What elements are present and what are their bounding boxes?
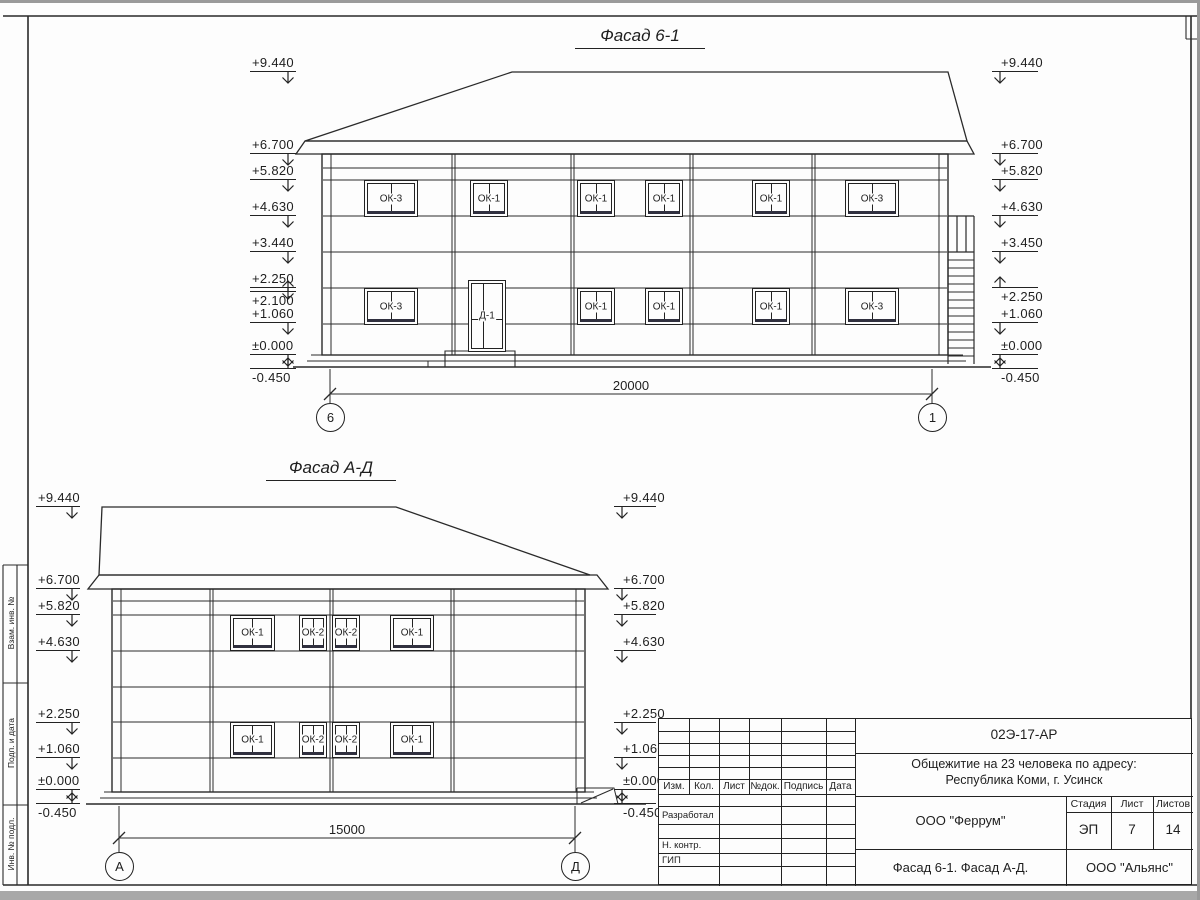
window-label: ОК-2 bbox=[334, 628, 359, 639]
elevation-mark-value: +6.700 bbox=[252, 137, 294, 152]
elevation-mark-value: +9.440 bbox=[38, 490, 80, 505]
window: ОК-3 bbox=[845, 288, 899, 325]
elevation-arrow-down-icon bbox=[65, 758, 79, 771]
window-label: ОК-2 bbox=[334, 735, 359, 746]
window-label: ОК-3 bbox=[860, 301, 885, 312]
col-kol: Кол. bbox=[689, 781, 719, 792]
window: ОК-1 bbox=[577, 180, 615, 217]
elevation-mark-value: +9.440 bbox=[623, 490, 665, 505]
elevation-arrow-down-icon bbox=[615, 723, 629, 736]
elevation-mark-value: -0.450 bbox=[252, 370, 291, 385]
axis-mark-a: А bbox=[105, 852, 134, 881]
facade2-dimension: 15000 bbox=[307, 822, 387, 837]
elevation-mark-value: +4.630 bbox=[1001, 199, 1043, 214]
elevation-mark-value: +4.630 bbox=[252, 199, 294, 214]
elevation-mark-value: +1.060 bbox=[1001, 306, 1043, 321]
elevation-arrow-down-icon bbox=[281, 180, 295, 193]
elevation-arrow-down-icon bbox=[993, 180, 1007, 193]
stage-value: ЭП bbox=[1066, 822, 1111, 837]
window: ОК-2 bbox=[332, 615, 360, 651]
axis-label: 6 bbox=[327, 410, 334, 425]
axis-mark-6: 6 bbox=[316, 403, 345, 432]
elevation-mark-value: ±0.000 bbox=[38, 773, 79, 788]
paper-edge-top bbox=[0, 0, 1200, 3]
window-label: ОК-1 bbox=[477, 193, 502, 204]
elevation-mark-value: +3.450 bbox=[1001, 235, 1043, 250]
elevation-mark-value: +6.700 bbox=[1001, 137, 1043, 152]
elevation-arrow-up-icon bbox=[615, 791, 629, 804]
elevation-arrow-down-icon bbox=[281, 216, 295, 229]
col-list: Лист bbox=[719, 781, 749, 792]
elevation-arrow-up-icon bbox=[993, 275, 1007, 288]
window-label: ОК-3 bbox=[379, 301, 404, 312]
window-label: ОК-1 bbox=[240, 735, 265, 746]
elevation-mark-value: -0.450 bbox=[623, 805, 662, 820]
elevation-arrow-down-icon bbox=[65, 651, 79, 664]
facade1-title: Фасад 6-1 bbox=[575, 26, 705, 49]
elevation-mark-value: +1.060 bbox=[252, 306, 294, 321]
elevation-mark-value: +6.700 bbox=[38, 572, 80, 587]
window: ОК-1 bbox=[470, 180, 508, 217]
col-ndok: №док. bbox=[749, 781, 781, 792]
elevation-mark-value: -0.450 bbox=[38, 805, 77, 820]
elevation-arrow-up-icon bbox=[281, 279, 295, 292]
axis-label: А bbox=[115, 859, 124, 874]
fire-ladder-lines bbox=[948, 216, 974, 364]
facade-6-1-lines bbox=[293, 72, 991, 403]
row-nkontr: Н. контр. bbox=[662, 840, 720, 851]
elevation-arrow-down-icon bbox=[615, 758, 629, 771]
window: ОК-3 bbox=[364, 288, 418, 325]
elevation-arrow-down-icon bbox=[993, 72, 1007, 85]
elevation-arrow-down-icon bbox=[993, 323, 1007, 336]
elevation-mark-value: -0.450 bbox=[1001, 370, 1040, 385]
window-label: ОК-1 bbox=[652, 301, 677, 312]
window-label: ОК-1 bbox=[759, 193, 784, 204]
col-podpis: Подпись bbox=[781, 781, 826, 792]
elevation-arrow-up-icon bbox=[993, 356, 1007, 369]
elevation-mark-value: +3.440 bbox=[252, 235, 294, 250]
elevation-mark-value: +5.820 bbox=[252, 163, 294, 178]
window: ОК-1 bbox=[645, 288, 683, 325]
window-label: ОК-3 bbox=[379, 193, 404, 204]
facade1-dimension: 20000 bbox=[591, 378, 671, 393]
col-data: Дата bbox=[826, 781, 855, 792]
facade2-title: Фасад А-Д bbox=[266, 458, 396, 481]
elevation-arrow-down-icon bbox=[65, 615, 79, 628]
margin-label-podp: Подп. и дата bbox=[6, 688, 16, 798]
window: ОК-1 bbox=[390, 722, 434, 758]
elevation-arrow-up-icon bbox=[65, 791, 79, 804]
sheet-value: 7 bbox=[1111, 822, 1153, 837]
window: ОК-1 bbox=[230, 615, 275, 651]
window-label: ОК-3 bbox=[860, 193, 885, 204]
stage-label: Стадия bbox=[1066, 798, 1111, 810]
elevation-mark-value: ±0.000 bbox=[1001, 338, 1042, 353]
window-label: ОК-1 bbox=[400, 628, 425, 639]
elevation-mark-value: +2.250 bbox=[38, 706, 80, 721]
elevation-arrow-down-icon bbox=[281, 252, 295, 265]
window: ОК-1 bbox=[752, 288, 790, 325]
row-gip: ГИП bbox=[662, 855, 720, 866]
sheet-label: Лист bbox=[1111, 798, 1153, 810]
elevation-mark-value: +5.820 bbox=[623, 598, 665, 613]
window: ОК-1 bbox=[645, 180, 683, 217]
elevation-mark-value: +2.250 bbox=[1001, 289, 1043, 304]
doc-number: 02Э-17-АР bbox=[855, 727, 1193, 742]
elevation-mark-value: ±0.000 bbox=[252, 338, 293, 353]
elevation-arrow-down-icon bbox=[615, 651, 629, 664]
margin-label-inv: Инв. № подл. bbox=[6, 789, 16, 899]
facade-a-d-lines bbox=[86, 507, 646, 852]
axis-label: Д bbox=[571, 859, 580, 874]
window-label: ОК-1 bbox=[652, 193, 677, 204]
elevation-mark-value: +9.440 bbox=[252, 55, 294, 70]
window-label: ОК-1 bbox=[240, 628, 265, 639]
sheets-label: Листов bbox=[1153, 798, 1193, 810]
window-label: ОК-2 bbox=[301, 735, 326, 746]
window: ОК-2 bbox=[299, 615, 327, 651]
row-razrabotal: Разработал bbox=[662, 810, 720, 821]
window: ОК-2 bbox=[332, 722, 360, 758]
window: ОК-3 bbox=[845, 180, 899, 217]
window-label: ОК-2 bbox=[301, 628, 326, 639]
elevation-mark-value: +5.820 bbox=[38, 598, 80, 613]
elevation-arrow-down-icon bbox=[615, 507, 629, 520]
window: ОК-1 bbox=[577, 288, 615, 325]
elevation-mark-value: +5.820 bbox=[1001, 163, 1043, 178]
drawing-sheet: { "facade1": { "title": "Фасад 6-1", "di… bbox=[0, 0, 1200, 900]
door: Д-1 bbox=[468, 280, 506, 352]
door-label: Д-1 bbox=[478, 311, 496, 322]
window-label: ОК-1 bbox=[584, 193, 609, 204]
elevation-arrow-down-icon bbox=[65, 723, 79, 736]
contractor-name: ООО "Альянс" bbox=[1066, 860, 1193, 875]
window: ОК-1 bbox=[390, 615, 434, 651]
sheet-title: Фасад 6-1. Фасад А-Д. bbox=[855, 860, 1066, 875]
title-block: Изм. Кол. Лист №док. Подпись Дата Разраб… bbox=[658, 718, 1192, 885]
project-name-line1: Общежитие на 23 человека по адресу: bbox=[855, 757, 1193, 771]
company-name: ООО "Феррум" bbox=[855, 813, 1066, 828]
margin-label-vzam: Взам. инв. № bbox=[6, 568, 16, 678]
elevation-mark-value: +4.630 bbox=[623, 634, 665, 649]
window: ОК-1 bbox=[752, 180, 790, 217]
sheets-value: 14 bbox=[1153, 822, 1193, 837]
window: ОК-3 bbox=[364, 180, 418, 217]
window-label: ОК-1 bbox=[759, 301, 784, 312]
elevation-arrow-down-icon bbox=[65, 507, 79, 520]
window: ОК-1 bbox=[230, 722, 275, 758]
axis-mark-d: Д bbox=[561, 852, 590, 881]
elevation-arrow-down-icon bbox=[993, 216, 1007, 229]
window: ОК-2 bbox=[299, 722, 327, 758]
elevation-mark-value: +4.630 bbox=[38, 634, 80, 649]
elevation-arrow-down-icon bbox=[993, 252, 1007, 265]
elevation-mark-value: +6.700 bbox=[623, 572, 665, 587]
project-name-line2: Республика Коми, г. Усинск bbox=[855, 773, 1193, 787]
axis-label: 1 bbox=[929, 410, 936, 425]
paper-edge-bottom bbox=[0, 891, 1200, 900]
col-izm: Изм. bbox=[659, 781, 689, 792]
elevation-arrow-down-icon bbox=[281, 323, 295, 336]
elevation-mark-value: +9.440 bbox=[1001, 55, 1043, 70]
axis-mark-1: 1 bbox=[918, 403, 947, 432]
window-label: ОК-1 bbox=[584, 301, 609, 312]
window-label: ОК-1 bbox=[400, 735, 425, 746]
elevation-arrow-down-icon bbox=[281, 72, 295, 85]
elevation-arrow-down-icon bbox=[615, 615, 629, 628]
elevation-arrow-up-icon bbox=[281, 356, 295, 369]
elevation-mark-value: +1.060 bbox=[38, 741, 80, 756]
